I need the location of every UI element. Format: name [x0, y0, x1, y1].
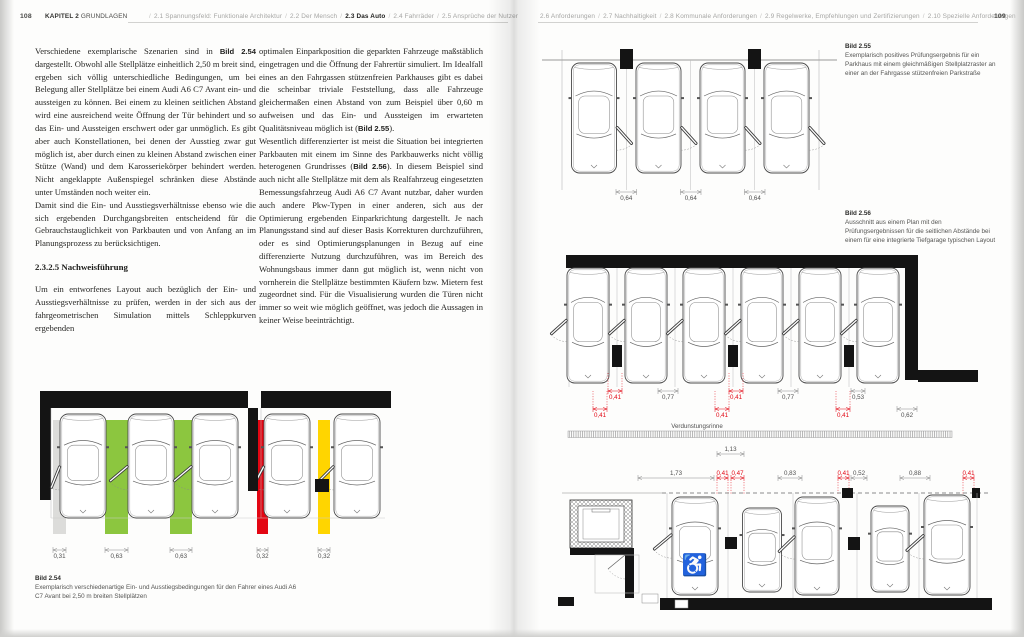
door-leaf — [608, 555, 625, 569]
door-swing-arc — [608, 569, 625, 579]
page-108: 108 KAPITEL 2 GRUNDLAGEN /2.1 Spannungsf… — [0, 0, 512, 637]
figure-254-diagram: 0,310,630,630,320,32 — [35, 388, 391, 570]
mirror — [310, 446, 313, 448]
wall — [570, 548, 632, 555]
open-door — [808, 126, 825, 145]
mirror — [899, 304, 902, 306]
open-door — [616, 126, 633, 145]
page-header-left: 108 KAPITEL 2 GRUNDLAGEN /2.1 Spannungsf… — [0, 13, 512, 25]
page-edge — [0, 629, 1024, 637]
mirror — [792, 527, 795, 529]
dim-label: 1,13 — [724, 446, 737, 453]
mirror — [740, 534, 743, 536]
mirror — [970, 526, 973, 528]
mirror — [633, 97, 636, 99]
nav-separator: / — [660, 13, 662, 20]
mirror — [909, 533, 912, 535]
wall — [844, 345, 854, 367]
dim-label: 0,64 — [685, 195, 698, 202]
door-swing-arc — [551, 334, 567, 341]
dimension: 0,77 — [658, 388, 678, 401]
elevator — [570, 500, 632, 548]
door-swing-arc — [681, 144, 697, 150]
dimension: 0,41 — [608, 373, 622, 401]
paragraph: Um ein entworfenes Layout auch bezüglich… — [35, 283, 256, 334]
mirror — [667, 304, 670, 306]
car — [868, 506, 912, 592]
gutter-label: Verdunstungsrinne — [671, 423, 723, 430]
dimension: 0,41 — [836, 391, 850, 419]
open-door — [653, 533, 673, 550]
dim-label: 0,62 — [901, 412, 914, 419]
wall — [842, 488, 853, 498]
caption-text: Ausschnitt aus einem Plan mit den Prüfun… — [845, 219, 995, 244]
figure-254-caption: Bild 2.54 Exemplarisch verschiedenartige… — [35, 575, 297, 602]
mirror — [783, 304, 786, 306]
paragraph: optimalen Einparkposition die geparkten … — [259, 45, 483, 135]
figure-255-caption: Bild 2.55 Exemplarisch positives Prüfung… — [845, 43, 997, 79]
figure-256-caption: Bild 2.56 Ausschnitt aus einem Plan mit … — [845, 210, 997, 246]
mirror — [380, 446, 383, 448]
mirror — [189, 446, 192, 448]
dimension: 0,88 — [900, 470, 930, 481]
mirror — [57, 446, 60, 448]
figure-255-diagram: 0,640,640,64 — [542, 40, 837, 205]
car — [666, 268, 728, 383]
car — [653, 497, 721, 595]
door-swing-arc — [745, 144, 761, 150]
door-swing-arc — [617, 144, 633, 150]
dim-label: 0,63 — [110, 553, 123, 560]
car — [569, 63, 633, 173]
page-edge — [1010, 0, 1024, 637]
nav-item: 2.8 Kommunale Anforderungen — [665, 13, 758, 20]
mirror — [331, 446, 334, 448]
nav-separator: / — [388, 13, 390, 20]
section-nav-left: /2.1 Spannungsfeld: Funktionale Architek… — [146, 13, 518, 20]
caption-text: Exemplarisch verschiedenartige Ein- und … — [35, 584, 296, 600]
header-rule — [538, 22, 978, 23]
nav-item: 2.3 Das Auto — [345, 13, 385, 20]
figure-256-lower-diagram: 1,131,730,410,470,830,410,520,880,41 ♿ — [542, 440, 992, 632]
wall — [620, 49, 633, 69]
car — [697, 63, 761, 173]
dimension: 0,53 — [851, 388, 865, 401]
car — [778, 497, 842, 595]
dimension: 0,52 — [851, 470, 867, 481]
wall — [728, 345, 738, 367]
elevator-door — [592, 509, 610, 512]
mirror — [617, 97, 620, 99]
section-nav-right: 2.6 Anforderungen/2.7 Nachhaltigkeit/2.8… — [540, 13, 1016, 20]
book-spread: 108 KAPITEL 2 GRUNDLAGEN /2.1 Spannungsf… — [0, 0, 1024, 637]
caption-title: Bild 2.55 — [845, 43, 997, 52]
paragraph: Verschiedene exemplarische Szenarien sin… — [35, 45, 256, 199]
evaporation-gutter-strip — [568, 431, 952, 438]
wall — [248, 408, 258, 491]
nav-item: 2.2 Der Mensch — [290, 13, 337, 20]
wall — [40, 391, 248, 408]
dimension: 0,31 — [53, 547, 66, 560]
dim-label: 0,41 — [609, 394, 622, 401]
dim-label: 1,73 — [670, 470, 683, 477]
mirror — [669, 527, 672, 529]
dimension: 0,77 — [778, 388, 798, 401]
mirror — [796, 304, 799, 306]
dimension: 0,41 — [593, 391, 607, 419]
nav-item: 2.9 Regelwerke, Empfehlungen und Zertifi… — [765, 13, 920, 20]
mirror — [609, 304, 612, 306]
nav-item: 2.4 Fahrräder — [393, 13, 434, 20]
wall — [625, 548, 634, 598]
dim-label: 0,53 — [852, 394, 865, 401]
dim-label: 0,52 — [853, 470, 866, 477]
chapter-label: KAPITEL 2 — [45, 13, 79, 20]
mirror — [622, 304, 625, 306]
section-heading: 2.3.2.5 Nachweisführung — [35, 261, 256, 274]
wall — [972, 488, 980, 498]
chapter-title: KAPITEL 2 GRUNDLAGEN — [45, 13, 127, 20]
nav-item: 2.1 Spannungsfeld: Funktionale Architekt… — [154, 13, 282, 20]
dimension: 0,64 — [616, 189, 637, 202]
dim-label: 0,41 — [730, 394, 743, 401]
nav-item: 2.6 Anforderungen — [540, 13, 595, 20]
caption-title: Bild 2.56 — [845, 210, 997, 219]
dim-label: 0,88 — [909, 470, 922, 477]
page-header-right: 2.6 Anforderungen/2.7 Nachhaltigkeit/2.8… — [512, 13, 1024, 25]
mirror — [174, 446, 177, 448]
wheelchair-accessible-icon: ♿ — [682, 552, 708, 577]
page-number: 108 — [20, 13, 32, 20]
chapter-name: GRUNDLAGEN — [81, 13, 128, 20]
dim-label: 0,63 — [175, 553, 188, 560]
dim-label: 0,41 — [716, 412, 729, 419]
mirror — [738, 304, 741, 306]
open-door — [550, 319, 568, 335]
mirror — [809, 97, 812, 99]
dimension: 0,64 — [681, 189, 702, 202]
dim-label: 0,47 — [731, 470, 744, 477]
open-door — [680, 126, 697, 145]
text-column-1: Verschiedene exemplarische Szenarien sin… — [35, 45, 256, 334]
mirror — [725, 304, 728, 306]
paragraph: Wesentlich differenzierter ist meist die… — [259, 135, 483, 327]
wall — [905, 255, 918, 380]
mirror — [680, 304, 683, 306]
dim-label: 0,64 — [620, 195, 633, 202]
nav-separator: / — [149, 13, 151, 20]
wall — [612, 345, 622, 367]
mirror — [854, 304, 857, 306]
wall — [748, 49, 761, 69]
car — [761, 63, 825, 173]
car — [905, 495, 973, 595]
dim-label: 0,41 — [837, 470, 850, 477]
dim-label: 0,83 — [784, 470, 797, 477]
mirror — [718, 527, 721, 529]
mirror — [839, 527, 842, 529]
door-swing-arc — [809, 144, 825, 150]
caption-text: Exemplarisch positives Prüfungsergebnis … — [845, 52, 996, 77]
wall — [40, 408, 51, 500]
dimension: 1,73 — [638, 470, 714, 481]
dimension: 0,83 — [778, 470, 802, 481]
nav-separator: / — [760, 13, 762, 20]
dim-label: 0,31 — [53, 553, 66, 560]
mirror — [125, 446, 128, 448]
nav-separator: / — [598, 13, 600, 20]
dimension: 0,62 — [897, 406, 917, 419]
figure-256-diagram: 0,410,770,410,770,530,410,410,410,62Verd… — [542, 250, 982, 440]
wall — [566, 255, 905, 268]
dimension: 1,13 — [717, 446, 744, 457]
door-swing-arc — [654, 550, 672, 559]
wall — [558, 597, 574, 606]
dimension: 0,63 — [170, 547, 192, 560]
dimension: 0,63 — [105, 547, 128, 560]
nav-item: 2.7 Nachhaltigkeit — [603, 13, 657, 20]
paragraph: Damit sind die Ein- und Ausstiegsverhält… — [35, 199, 256, 250]
page-109: 2.6 Anforderungen/2.7 Nachhaltigkeit/2.8… — [512, 0, 1024, 637]
caption-title: Bild 2.54 — [35, 575, 297, 584]
page-gutter-shadow — [488, 0, 540, 637]
header-rule — [128, 22, 508, 23]
open-door — [744, 126, 761, 145]
page-edge — [0, 0, 14, 637]
wall — [315, 479, 329, 492]
wall — [261, 391, 391, 408]
dimension: 0,64 — [745, 189, 766, 202]
wall — [918, 370, 978, 382]
mirror — [569, 97, 572, 99]
wall-opening — [675, 600, 688, 608]
wall — [848, 537, 860, 550]
mirror — [761, 97, 764, 99]
nav-separator: / — [437, 13, 439, 20]
dimension: 0,32 — [318, 547, 331, 560]
nav-separator: / — [285, 13, 287, 20]
dimension: 0,41 — [716, 470, 729, 494]
mirror — [106, 446, 109, 448]
mirror — [697, 97, 700, 99]
mirror — [921, 526, 924, 528]
dim-label: 0,77 — [662, 394, 675, 401]
dimension: 0,41 — [715, 391, 729, 419]
mirror — [681, 97, 684, 99]
dimension: 0,47 — [731, 470, 744, 494]
dim-label: 0,41 — [594, 412, 607, 419]
wall — [660, 598, 992, 610]
mirror — [261, 446, 264, 448]
dim-label: 0,32 — [256, 553, 269, 560]
mirror — [868, 533, 871, 535]
car — [550, 268, 612, 383]
car — [782, 268, 844, 383]
dim-label: 0,77 — [782, 394, 795, 401]
mirror — [238, 446, 241, 448]
text-column-2: optimalen Einparkposition die geparkten … — [259, 45, 483, 327]
dim-label: 0,64 — [749, 195, 762, 202]
nav-separator: / — [340, 13, 342, 20]
car — [633, 63, 697, 173]
mirror — [564, 304, 567, 306]
page-number: 109 — [994, 13, 1006, 20]
dim-label: 0,41 — [716, 470, 729, 477]
car — [740, 508, 785, 592]
dim-label: 0,41 — [837, 412, 850, 419]
nav-separator: / — [923, 13, 925, 20]
mirror — [841, 304, 844, 306]
dim-label: 0,32 — [318, 553, 331, 560]
wall — [725, 537, 737, 549]
mirror — [782, 534, 785, 536]
mirror — [745, 97, 748, 99]
dimension: 0,32 — [256, 547, 269, 560]
dim-label: 0,41 — [962, 470, 975, 477]
